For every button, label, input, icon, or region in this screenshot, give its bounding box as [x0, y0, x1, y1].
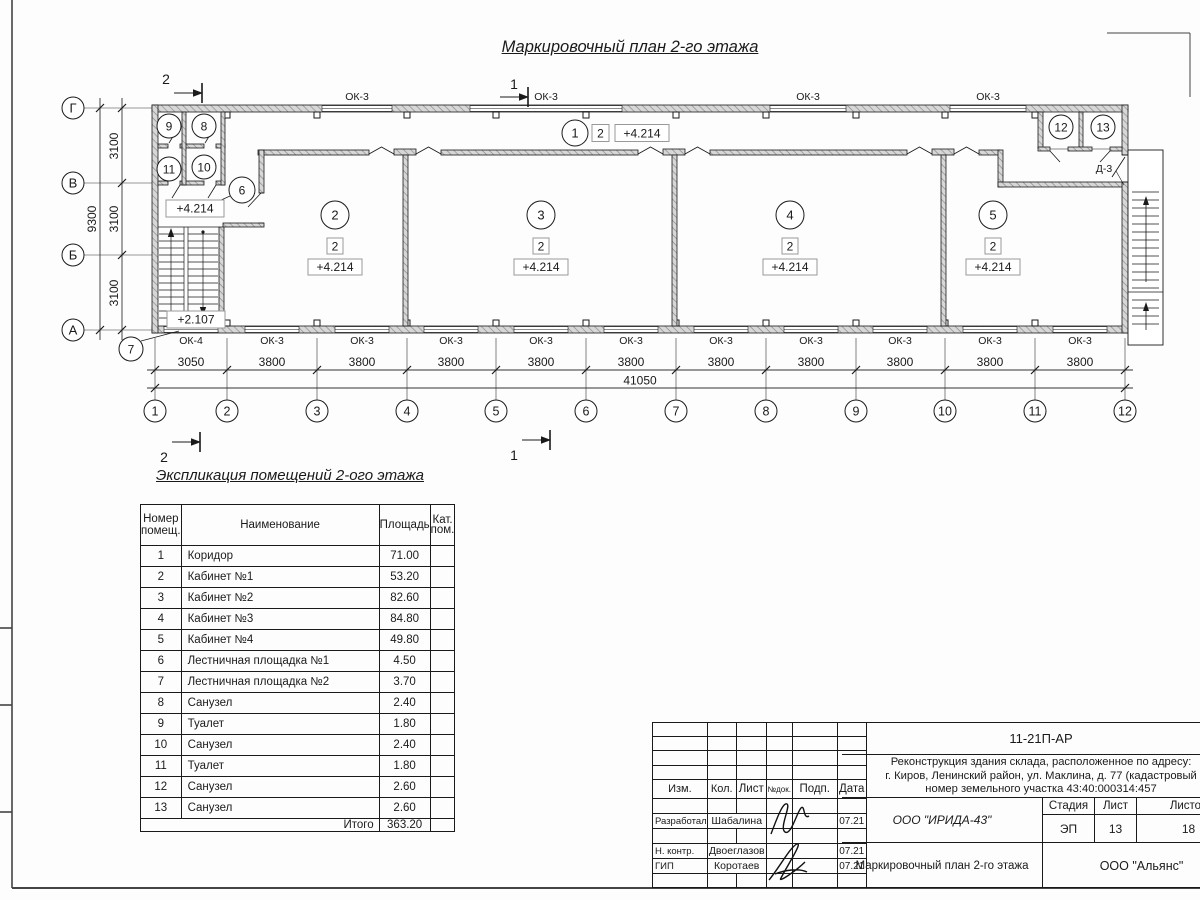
dim-value: 3800	[708, 355, 735, 369]
window-bottom-4	[424, 327, 478, 333]
room-area: 2.60	[379, 777, 430, 798]
room-marker-2: 2 2 +4.214	[308, 201, 362, 275]
room-marker-3: 3 2 +4.214	[514, 201, 568, 275]
room-category	[430, 735, 455, 756]
stamp-row: Н. контр. Двоеглазов 07.21	[653, 844, 867, 859]
window-label: ОК-3	[976, 91, 1000, 103]
room-number: 4	[141, 609, 182, 630]
dim-value: 3800	[438, 355, 465, 369]
room-marker-4: 4 2 +4.214	[763, 201, 817, 275]
dim-value: 3800	[887, 355, 914, 369]
section-number: 2	[160, 449, 168, 465]
axis-label: 3	[314, 405, 321, 419]
axis-label: 12	[1118, 405, 1132, 419]
window-label: ОК-3	[888, 335, 912, 347]
schedule-row: 6Лестничная площадка №14.50	[141, 651, 455, 672]
room-elevation: +4.214	[771, 260, 808, 274]
section-number: 1	[510, 447, 518, 463]
header-room-area: Площадь	[379, 505, 430, 546]
sheets-total: 18	[1137, 815, 1200, 843]
room-category	[430, 798, 455, 819]
room-schedule: Номерпомещ. Наименование Площадь Кат.пом…	[140, 504, 455, 832]
designer-org: ООО "ИРИДА-43"	[842, 798, 1043, 843]
axis-label: 4	[404, 405, 411, 419]
room-marker-5: 5 2 +4.214	[966, 201, 1020, 275]
project-line: Реконструкция здания склада, расположенн…	[842, 756, 1200, 770]
room-area: 2.40	[379, 735, 430, 756]
col-dok: №док.	[766, 780, 792, 799]
schedule-row: 12Санузел2.60	[141, 777, 455, 798]
dim-value: 3800	[977, 355, 1004, 369]
axis-label: 6	[583, 405, 590, 419]
contractor-org: ООО "Альянс"	[1043, 843, 1200, 888]
schedule-row: 1Коридор71.00	[141, 546, 455, 567]
window-label: ОК-3	[350, 335, 374, 347]
header-room-number: Номерпомещ.	[141, 505, 182, 546]
schedule-header-row: Номерпомещ. Наименование Площадь Кат.пом…	[141, 505, 455, 546]
revision-row	[653, 723, 867, 737]
sheet-number: 13	[1095, 815, 1137, 843]
window-bottom-2	[245, 327, 299, 333]
axis-label: Г	[69, 101, 76, 116]
room-category	[430, 546, 455, 567]
room-number: 9	[141, 714, 182, 735]
project-line: номер земельного участка 43:40:000314:45…	[842, 783, 1200, 797]
window-bottom-11	[1053, 327, 1107, 333]
dim-value: 3100	[107, 205, 121, 232]
schedule-row: 7Лестничная площадка №23.70	[141, 672, 455, 693]
room-floor-mark: 2	[332, 240, 339, 254]
room-number: 12	[141, 777, 182, 798]
axis-label: 7	[673, 405, 680, 419]
room-number: 13	[1096, 121, 1110, 135]
room-name: Туалет	[181, 714, 379, 735]
dim-total: 41050	[623, 374, 657, 388]
room-number: 13	[141, 798, 182, 819]
staircase-exterior	[1128, 150, 1163, 345]
col-list: Лист	[736, 780, 766, 799]
signature-shabalina	[763, 798, 815, 844]
dim-value: 3800	[1067, 355, 1094, 369]
window-bottom-6	[604, 327, 658, 333]
window-label: ОК-3	[796, 91, 820, 103]
room-number: 2	[331, 208, 338, 223]
section-mark-1-top: 1	[500, 76, 529, 107]
elevation-mid-landing: +2.107	[177, 313, 214, 327]
room-name: Лестничная площадка №2	[181, 672, 379, 693]
schedule-row: 5Кабинет №449.80	[141, 630, 455, 651]
stair-enclosure	[219, 150, 264, 326]
window-bottom-10	[963, 327, 1017, 333]
col-izm: Изм.	[653, 780, 708, 799]
dim-value: 3800	[618, 355, 645, 369]
stamp-header-row: Изм. Кол. Лист №док. Подп. Дата	[653, 780, 867, 799]
section-number: 2	[162, 71, 170, 87]
window-bottom-7	[694, 327, 748, 333]
room-number: 6	[239, 184, 246, 198]
axis-grid-left: Г В Б А 9300 3100 3100 3100	[62, 97, 152, 341]
room-name: Туалет	[181, 756, 379, 777]
role-cell: ГИП	[653, 859, 708, 874]
axis-label: В	[69, 176, 78, 191]
room-number: 1	[141, 546, 182, 567]
project-line: г. Киров, Ленинский район, ул. Маклина, …	[842, 770, 1200, 784]
stamp-row	[653, 874, 867, 888]
room-category	[430, 714, 455, 735]
stage-value: ЭП	[1043, 815, 1095, 843]
plan-title: Маркировочный план 2-го этажа	[430, 38, 830, 57]
room-area: 82.60	[379, 588, 430, 609]
window-bottom-3	[335, 327, 389, 333]
schedule-row: 10Санузел2.40	[141, 735, 455, 756]
dim-value: 3050	[178, 355, 205, 369]
door-label-d3: Д-3	[1096, 163, 1113, 175]
elevation-landing: +4.214	[176, 202, 213, 216]
schedule-row: 13Санузел2.60	[141, 798, 455, 819]
room-area: 84.80	[379, 609, 430, 630]
entrance-door-d3	[1112, 155, 1128, 185]
room-area: 4.50	[379, 651, 430, 672]
window-label: ОК-3	[529, 335, 553, 347]
room-area: 1.80	[379, 714, 430, 735]
total-value: 363.20	[379, 819, 430, 832]
window-label: ОК-3	[619, 335, 643, 347]
axis-label: А	[69, 323, 78, 338]
drawing-sheet: { "plan": { "title": "Маркировочный план…	[0, 0, 1200, 900]
stamp-row	[653, 799, 867, 814]
schedule-total-row: Итого 363.20	[141, 819, 455, 832]
name-cell: Двоеглазов	[707, 844, 766, 859]
dim-value: 3800	[528, 355, 555, 369]
dim-total: 9300	[85, 205, 99, 232]
schedule-title: Экспликация помещений 2-ого этажа	[140, 467, 440, 484]
axis-label: 1	[152, 405, 159, 419]
window-label: ОК-3	[709, 335, 733, 347]
staircase-interior	[158, 227, 219, 320]
axis-label: 9	[853, 405, 860, 419]
room-number: 8	[201, 120, 208, 134]
room-category	[430, 756, 455, 777]
room-category	[430, 777, 455, 798]
header-room-category: Кат.пом.	[430, 505, 455, 546]
schedule-row: 8Санузел2.40	[141, 693, 455, 714]
room-category	[430, 630, 455, 651]
room-area: 71.00	[379, 546, 430, 567]
schedule-row: 4Кабинет №384.80	[141, 609, 455, 630]
room-elevation: +4.214	[623, 127, 660, 141]
dim-value: 3100	[107, 279, 121, 306]
room-number: 10	[197, 161, 211, 175]
room-name: Санузел	[181, 735, 379, 756]
room-category	[430, 693, 455, 714]
room-number: 5	[989, 208, 996, 223]
section-mark-2-top: 2	[162, 71, 203, 103]
section-number: 1	[510, 76, 518, 92]
section-mark-2-bottom: 2	[160, 432, 201, 465]
axis-label: 5	[493, 405, 500, 419]
axis-label: 11	[1029, 405, 1042, 419]
room-name: Кабинет №2	[181, 588, 379, 609]
window-bottom-9	[873, 327, 927, 333]
room-elevation: +4.214	[974, 260, 1011, 274]
section-mark-1-bottom: 1	[510, 430, 551, 463]
axis-grid-bottom: 1 2 3 4 5 6 7 8 9 10 11 12	[144, 400, 1136, 422]
sheet-label: Лист	[1095, 798, 1137, 815]
room-floor-mark: 2	[538, 240, 545, 254]
stage-label: Стадия	[1043, 798, 1095, 815]
schedule-row: 9Туалет1.80	[141, 714, 455, 735]
window-top-4	[950, 106, 1026, 112]
room-elevation: +4.214	[316, 260, 353, 274]
project-description: Реконструкция здания склада, расположенн…	[842, 755, 1200, 798]
window-top-2	[470, 106, 622, 112]
dim-value: 3100	[107, 132, 121, 159]
schedule-row: 2Кабинет №153.20	[141, 567, 455, 588]
room-area: 53.20	[379, 567, 430, 588]
stamp-row: Разработал Шабалина 07.21	[653, 814, 867, 829]
room-number: 11	[163, 163, 176, 177]
room-number: 10	[141, 735, 182, 756]
room-number: 7	[128, 343, 135, 357]
total-category	[430, 819, 455, 832]
room-floor-mark: 2	[597, 127, 604, 141]
dim-value: 3800	[259, 355, 286, 369]
title-block-left-grid: Изм. Кол. Лист №док. Подп. Дата Разработ…	[652, 722, 867, 888]
room-number: 1	[571, 126, 578, 141]
room-category	[430, 588, 455, 609]
room-category	[430, 567, 455, 588]
room-category	[430, 672, 455, 693]
room-name: Санузел	[181, 693, 379, 714]
name-cell: Шабалина	[707, 814, 766, 829]
axis-label: 2	[224, 405, 231, 419]
room-category	[430, 609, 455, 630]
col-kol: Кол.	[707, 780, 736, 799]
schedule-body: 1Коридор71.002Кабинет №153.203Кабинет №2…	[141, 546, 455, 819]
window-bottom-8	[784, 327, 838, 333]
room-number: 7	[141, 672, 182, 693]
sheet-name: Маркировочный план 2-го этажа	[842, 843, 1043, 888]
stamp-row: ГИП Коротаев 07.21	[653, 859, 867, 874]
dimension-lines-bottom	[147, 338, 1133, 400]
room-number: 4	[786, 208, 793, 223]
room-area: 49.80	[379, 630, 430, 651]
window-label: ОК-3	[534, 91, 558, 103]
window-bottom-5	[514, 327, 568, 333]
room-number: 3	[537, 208, 544, 223]
room-number: 3	[141, 588, 182, 609]
document-code: 11-21П-АР	[842, 722, 1200, 755]
stamp-row	[653, 829, 867, 844]
room-area: 3.70	[379, 672, 430, 693]
signature-dvoyeglazov-korotaev	[763, 840, 815, 886]
room-number: 11	[141, 756, 182, 777]
sheets-label: Листов	[1137, 798, 1200, 815]
window-label: ОК-3	[345, 91, 369, 103]
room-name: Санузел	[181, 798, 379, 819]
stair-elevations: +4.214 +2.107	[166, 200, 225, 328]
room-name: Санузел	[181, 777, 379, 798]
role-cell: Н. контр.	[653, 844, 708, 859]
room-number: 9	[166, 120, 173, 134]
schedule-row: 3Кабинет №282.60	[141, 588, 455, 609]
name-cell: Коротаев	[707, 859, 766, 874]
room-floor-mark: 2	[787, 240, 794, 254]
window-top-3	[770, 106, 846, 112]
room-partitions	[403, 155, 946, 326]
room-name: Кабинет №3	[181, 609, 379, 630]
window-label: ОК-3	[260, 335, 284, 347]
col-podp: Подп.	[792, 780, 837, 799]
room-name: Кабинет №4	[181, 630, 379, 651]
room-number: 6	[141, 651, 182, 672]
revision-row	[653, 737, 867, 751]
window-label: ОК-3	[799, 335, 823, 347]
header-room-name: Наименование	[181, 505, 379, 546]
dim-value: 3800	[349, 355, 376, 369]
room-name: Кабинет №1	[181, 567, 379, 588]
axis-label: 8	[763, 405, 770, 419]
room-name: Коридор	[181, 546, 379, 567]
dim-value: 3800	[798, 355, 825, 369]
room-name: Лестничная площадка №1	[181, 651, 379, 672]
room-category	[430, 651, 455, 672]
window-labels-bottom: ОК-4 ОК-3 ОК-3 ОК-3 ОК-3 ОК-3 ОК-3 ОК-3 …	[179, 335, 1092, 347]
total-label: Итого	[141, 819, 380, 832]
room-floor-mark: 2	[990, 240, 997, 254]
window-label: ОК-3	[1068, 335, 1092, 347]
room-area: 2.60	[379, 798, 430, 819]
room-area: 2.40	[379, 693, 430, 714]
room-number: 8	[141, 693, 182, 714]
window-top-1	[322, 106, 392, 112]
axis-label: 10	[938, 405, 952, 419]
revision-row	[653, 766, 867, 780]
role-cell: Разработал	[653, 814, 708, 829]
revision-row	[653, 751, 867, 766]
axis-label: Б	[69, 248, 78, 263]
room-number: 12	[1054, 121, 1068, 135]
schedule-row: 11Туалет1.80	[141, 756, 455, 777]
room-elevation: +4.214	[522, 260, 559, 274]
room-number: 5	[141, 630, 182, 651]
room-area: 1.80	[379, 756, 430, 777]
room-number: 2	[141, 567, 182, 588]
room-marker-corridor: 1 2 +4.214	[562, 120, 669, 146]
window-labels-top: ОК-3 ОК-3 ОК-3 ОК-3	[345, 91, 1000, 103]
window-label: ОК-3	[439, 335, 463, 347]
window-label: ОК-3	[978, 335, 1002, 347]
window-label: ОК-4	[179, 335, 203, 347]
